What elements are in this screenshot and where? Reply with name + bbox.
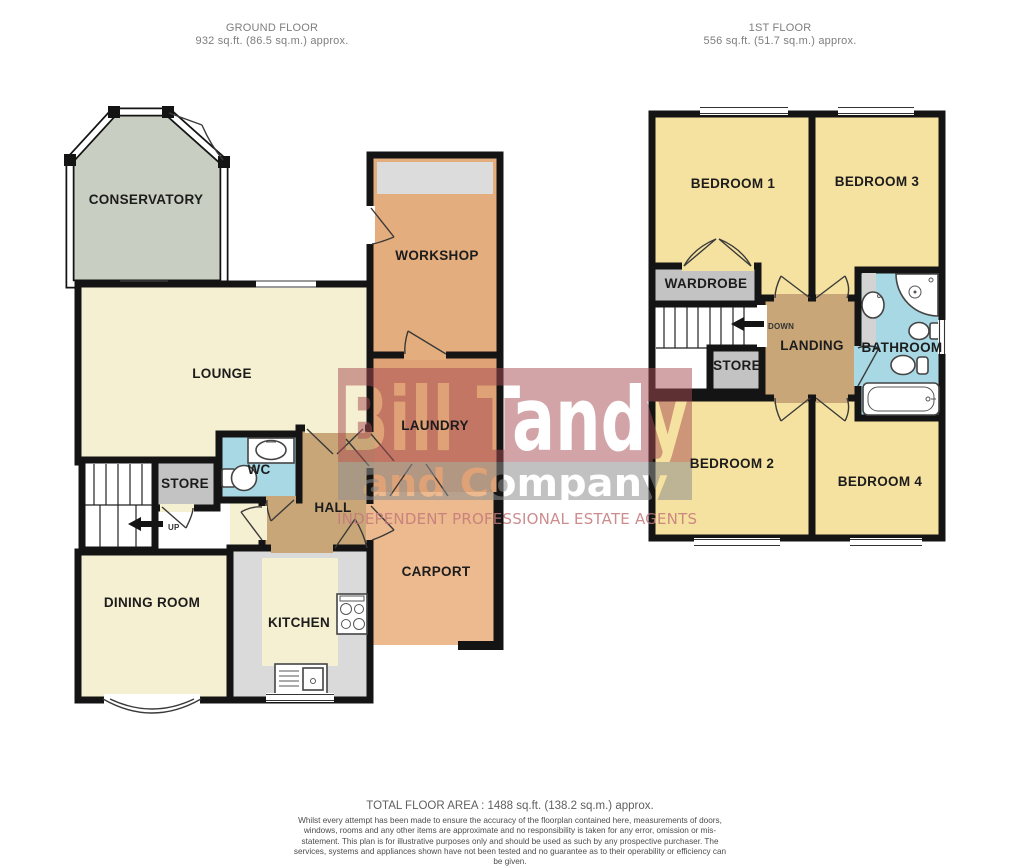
total-floor-area: TOTAL FLOOR AREA : 1488 sq.ft. (138.2 sq… <box>260 800 760 812</box>
label-landing: LANDING <box>780 338 844 353</box>
bathtub-icon <box>863 383 939 415</box>
label-bedroom4: BEDROOM 4 <box>838 474 923 489</box>
label-bedroom1: BEDROOM 1 <box>691 176 776 191</box>
label-carport: CARPORT <box>402 564 471 579</box>
window-kitchen-bottom <box>266 693 334 702</box>
kitchen-hob-icon <box>337 594 367 634</box>
label-laundry: LAUNDRY <box>401 418 469 433</box>
label-kitchen: KITCHEN <box>268 615 330 630</box>
workshop-garage-door <box>377 162 493 194</box>
label-hall: HALL <box>314 500 351 515</box>
bidet-icon <box>891 356 928 375</box>
label-conservatory: CONSERVATORY <box>89 192 204 207</box>
hallway-corridor <box>230 500 262 552</box>
kitchen-sink-icon <box>275 664 327 694</box>
watermark-gray-band <box>338 462 692 500</box>
disclaimer-text: Whilst every attempt has been made to en… <box>292 816 728 866</box>
floorplan-page: GROUND FLOOR 932 sq.ft. (86.5 sq.m.) app… <box>0 0 1020 866</box>
label-bedroom2: BEDROOM 2 <box>690 456 774 471</box>
kitchen-floor <box>262 558 338 666</box>
label-workshop: WORKSHOP <box>395 248 478 263</box>
label-store-ground: STORE <box>161 476 209 491</box>
label-down: DOWN <box>768 322 794 331</box>
toilet-icon <box>909 323 939 340</box>
label-lounge: LOUNGE <box>192 366 252 381</box>
watermark-tagline: INDEPENDENT PROFESSIONAL ESTATE AGENTS <box>337 510 697 528</box>
label-up: UP <box>168 523 180 532</box>
wc-sink-icon <box>248 438 294 463</box>
bay-window-dining <box>103 694 201 713</box>
label-dining: DINING ROOM <box>104 595 200 610</box>
label-wardrobe: WARDROBE <box>665 276 748 291</box>
watermark-red-band <box>338 368 692 462</box>
stairs-ground <box>82 460 155 550</box>
footer: TOTAL FLOOR AREA : 1488 sq.ft. (138.2 sq… <box>260 800 760 866</box>
label-bathroom: BATHROOM <box>862 340 943 355</box>
floorplan-drawing: Bill Tandy and Company <box>0 0 1020 866</box>
label-wc: WC <box>247 462 270 477</box>
room-dining <box>78 552 230 700</box>
label-store-first: STORE <box>713 358 761 373</box>
label-bedroom3: BEDROOM 3 <box>835 174 920 189</box>
